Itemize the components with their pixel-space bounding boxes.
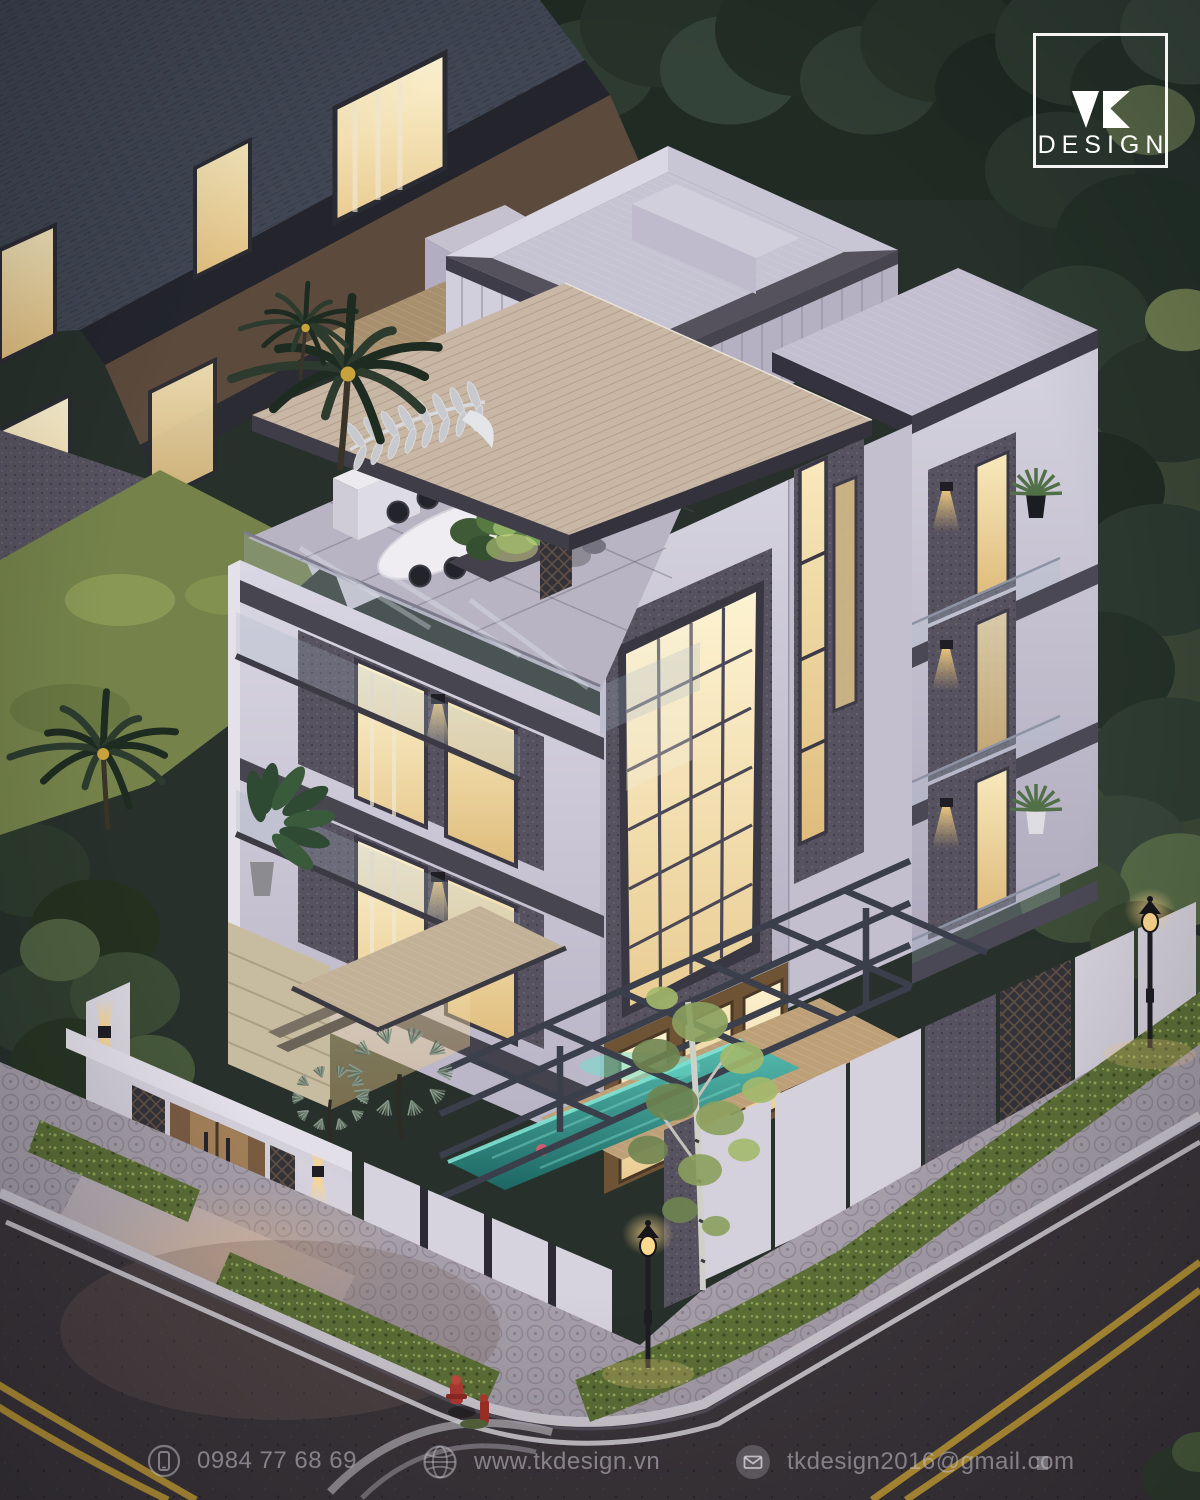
text-cursor-artifact bbox=[1037, 1456, 1048, 1470]
email-icon bbox=[735, 1444, 771, 1480]
tk-design-logo: DESIGN bbox=[1033, 33, 1168, 168]
logo-text: DESIGN bbox=[1032, 133, 1170, 158]
contact-email: tkdesign2016@gmail.com bbox=[735, 1444, 1075, 1480]
contact-phone: 0984 77 68 69 bbox=[147, 1444, 357, 1478]
villa-render bbox=[0, 0, 1200, 1500]
globe-icon bbox=[422, 1444, 458, 1480]
render-canvas: DESIGN 0984 77 68 69 www.tkdesign.vn tkd… bbox=[0, 0, 1200, 1500]
tk-mark-icon bbox=[1072, 91, 1130, 129]
phone-icon bbox=[147, 1444, 181, 1478]
email-address: tkdesign2016@gmail.com bbox=[787, 1448, 1075, 1476]
contact-website: www.tkdesign.vn bbox=[422, 1444, 660, 1480]
dusk-vignette bbox=[0, 0, 1200, 1500]
phone-number: 0984 77 68 69 bbox=[197, 1447, 357, 1475]
website-url: www.tkdesign.vn bbox=[474, 1448, 660, 1476]
